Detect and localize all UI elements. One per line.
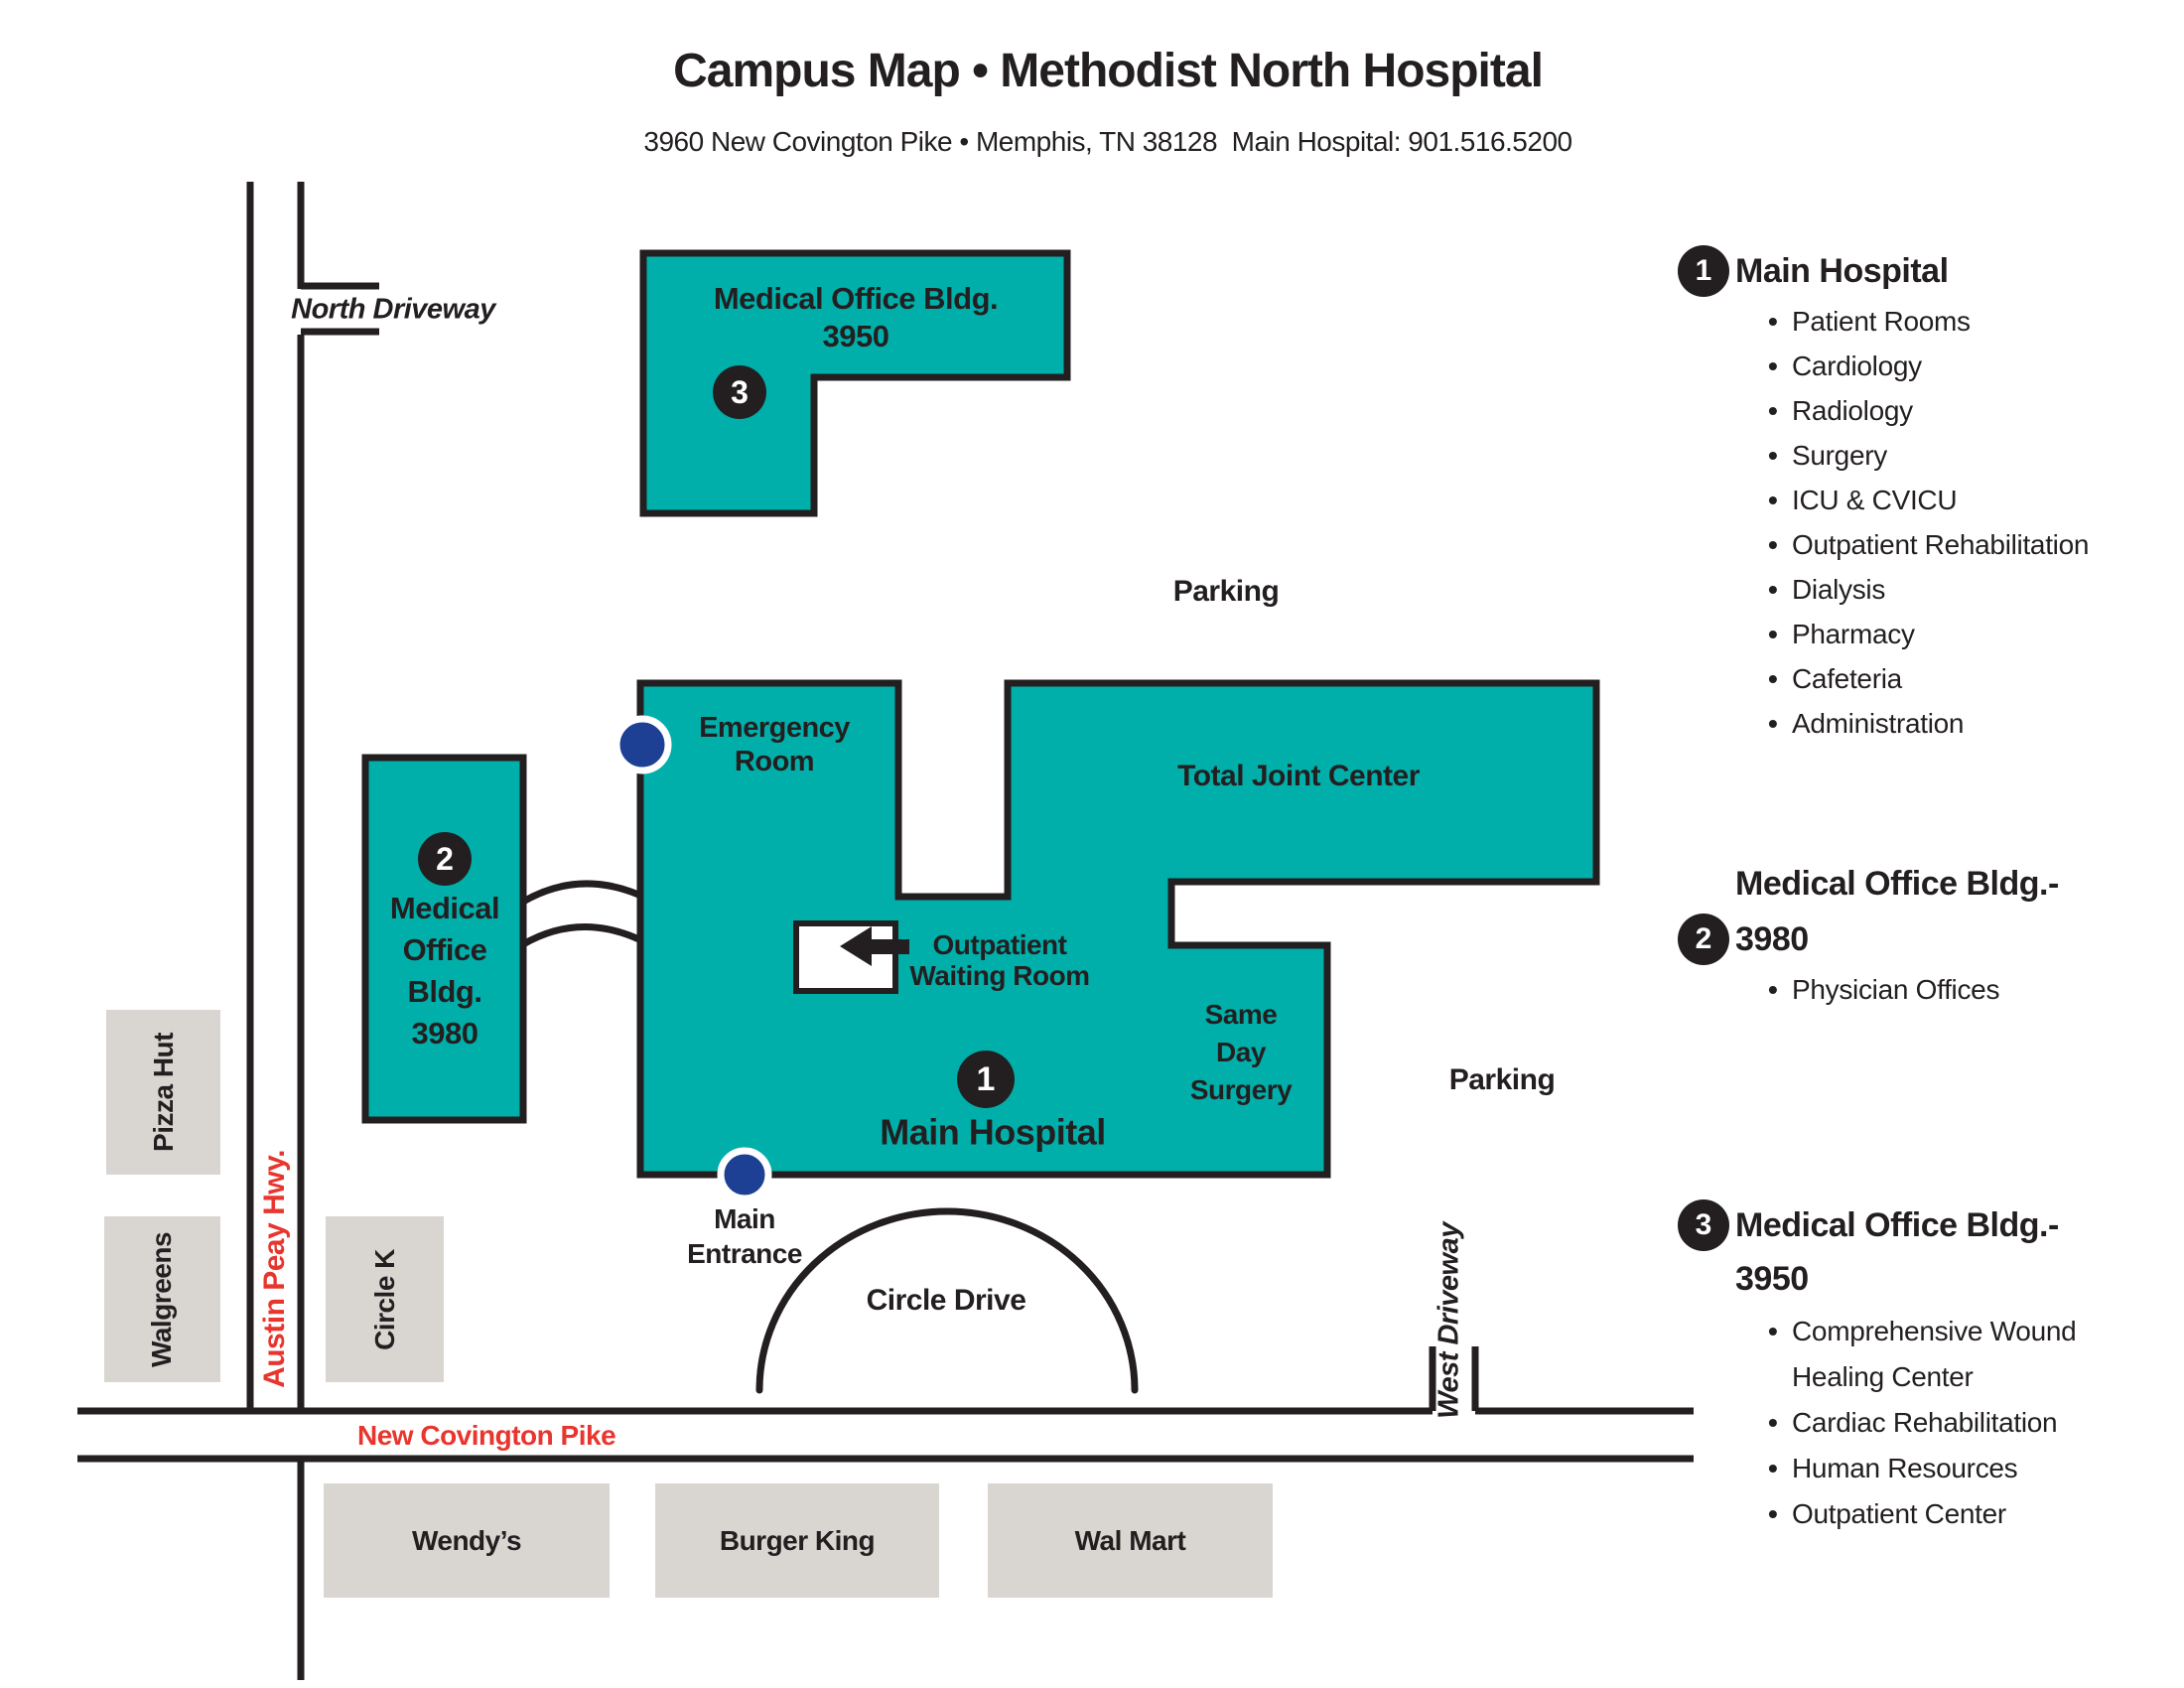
emergency-line1: Emergency (699, 711, 850, 745)
legend-item: Surgery (1792, 433, 2174, 478)
page-title: Campus Map • Methodist North Hospital (673, 43, 1543, 100)
walkway-arcs (523, 884, 645, 944)
outpatient-waiting-label: Outpatient Waiting Room (909, 929, 1089, 991)
pizza-hut-label: Pizza Hut (148, 1033, 180, 1152)
legend-mob3980: Medical Office Bldg.- 2 3980 Physician O… (1678, 862, 2174, 1012)
circle-k-building: Circle K (326, 1216, 444, 1382)
mob3950-name: Medical Office Bldg. (714, 280, 998, 318)
legend-badge-1: 1 (1678, 245, 1729, 297)
mob3980-line1: Medical (390, 888, 499, 929)
legend-item: ICU & CVICU (1792, 478, 2174, 522)
main-entrance-line1: Main (687, 1201, 802, 1236)
pizza-hut-building: Pizza Hut (106, 1010, 220, 1175)
outpatient-line2: Waiting Room (909, 960, 1089, 991)
mob3980-line2: Office (390, 929, 499, 971)
legend-item: Cardiac Rehabilitation (1792, 1400, 2129, 1446)
burger-king-building: Burger King (655, 1483, 939, 1598)
wendys-building: Wendy’s (324, 1483, 610, 1598)
badge-1-map: 1 (957, 1051, 1015, 1108)
total-joint-center-label: Total Joint Center (1177, 759, 1420, 794)
outpatient-line1: Outpatient (909, 929, 1089, 960)
west-driveway-label: West Driveway (1433, 1222, 1467, 1419)
campus-map-page: Campus Map • Methodist North Hospital 39… (0, 0, 2184, 1688)
legend-item: Cardiology (1792, 344, 2174, 388)
legend-item: Dialysis (1792, 567, 2174, 612)
legend-1-title: Main Hospital (1735, 252, 1949, 291)
legend-item: Outpatient Rehabilitation (1792, 522, 2174, 567)
badge-3-map: 3 (713, 365, 766, 419)
circle-k-label: Circle K (368, 1249, 400, 1350)
legend-3-subtitle: 3950 (1678, 1257, 2174, 1301)
legend-item: Comprehensive Wound Healing Center (1792, 1309, 2129, 1400)
legend-3-title: Medical Office Bldg.- (1735, 1206, 2059, 1245)
wal-mart-building: Wal Mart (988, 1483, 1273, 1598)
legend-mob3950: 3 Medical Office Bldg.- 3950 Comprehensi… (1678, 1199, 2174, 1537)
legend-item: Physician Offices (1792, 967, 2174, 1012)
parking-east-label: Parking (1449, 1062, 1556, 1098)
same-day-surgery-label: Same Day Surgery (1190, 996, 1292, 1109)
legend-2-subtitle: 3980 (1735, 920, 1809, 959)
main-entrance-dot (721, 1151, 768, 1198)
walgreens-label: Walgreens (147, 1231, 179, 1366)
mob3950-number: 3950 (714, 318, 998, 355)
emergency-line2: Room (699, 745, 850, 778)
legend-item: Radiology (1792, 388, 2174, 433)
mob3980-label: Medical Office Bldg. 3980 (390, 888, 499, 1055)
legend-item: Patient Rooms (1792, 299, 2174, 344)
mob3950-label: Medical Office Bldg. 3950 (714, 280, 998, 355)
legend-item: Pharmacy (1792, 612, 2174, 656)
legend-3-items: Comprehensive Wound Healing Center Cardi… (1678, 1309, 2129, 1537)
badge-2-map: 2 (418, 832, 472, 886)
legend-badge-3: 3 (1678, 1199, 1729, 1251)
outpatient-waiting-room-box (796, 923, 895, 991)
burger-king-label: Burger King (720, 1525, 875, 1557)
same-day-line3: Surgery (1190, 1071, 1292, 1109)
same-day-line2: Day (1190, 1034, 1292, 1071)
legend-item: Human Resources (1792, 1446, 2129, 1491)
main-entrance-line2: Entrance (687, 1236, 802, 1271)
legend-item: Administration (1792, 701, 2174, 746)
emergency-room-label: Emergency Room (699, 711, 850, 778)
mob3980-line3: Bldg. (390, 971, 499, 1013)
same-day-line1: Same (1190, 996, 1292, 1034)
austin-peay-hwy-label: Austin Peay Hwy. (257, 1150, 293, 1388)
wal-mart-label: Wal Mart (1075, 1525, 1186, 1557)
circle-drive-label: Circle Drive (867, 1283, 1026, 1319)
legend-item: Cafeteria (1792, 656, 2174, 701)
legend-1-items: Patient Rooms Cardiology Radiology Surge… (1678, 299, 2174, 746)
north-driveway-label: North Driveway (291, 293, 495, 328)
main-hospital-label: Main Hospital (880, 1110, 1106, 1153)
new-covington-pike-label: New Covington Pike (357, 1419, 615, 1453)
parking-north-label: Parking (1173, 574, 1280, 610)
legend-2-title: Medical Office Bldg.- (1678, 862, 2174, 906)
legend-2-items: Physician Offices (1678, 967, 2174, 1012)
wendys-label: Wendy’s (412, 1525, 521, 1557)
legend-badge-2: 2 (1678, 914, 1729, 965)
legend-item: Outpatient Center (1792, 1491, 2129, 1537)
page-subtitle: 3960 New Covington Pike • Memphis, TN 38… (643, 125, 1571, 159)
walgreens-building: Walgreens (104, 1216, 220, 1382)
legend-main-hospital: 1 Main Hospital Patient Rooms Cardiology… (1678, 245, 2174, 746)
mob3980-line4: 3980 (390, 1013, 499, 1055)
emergency-entrance-dot (616, 719, 668, 771)
main-entrance-label: Main Entrance (687, 1201, 802, 1271)
